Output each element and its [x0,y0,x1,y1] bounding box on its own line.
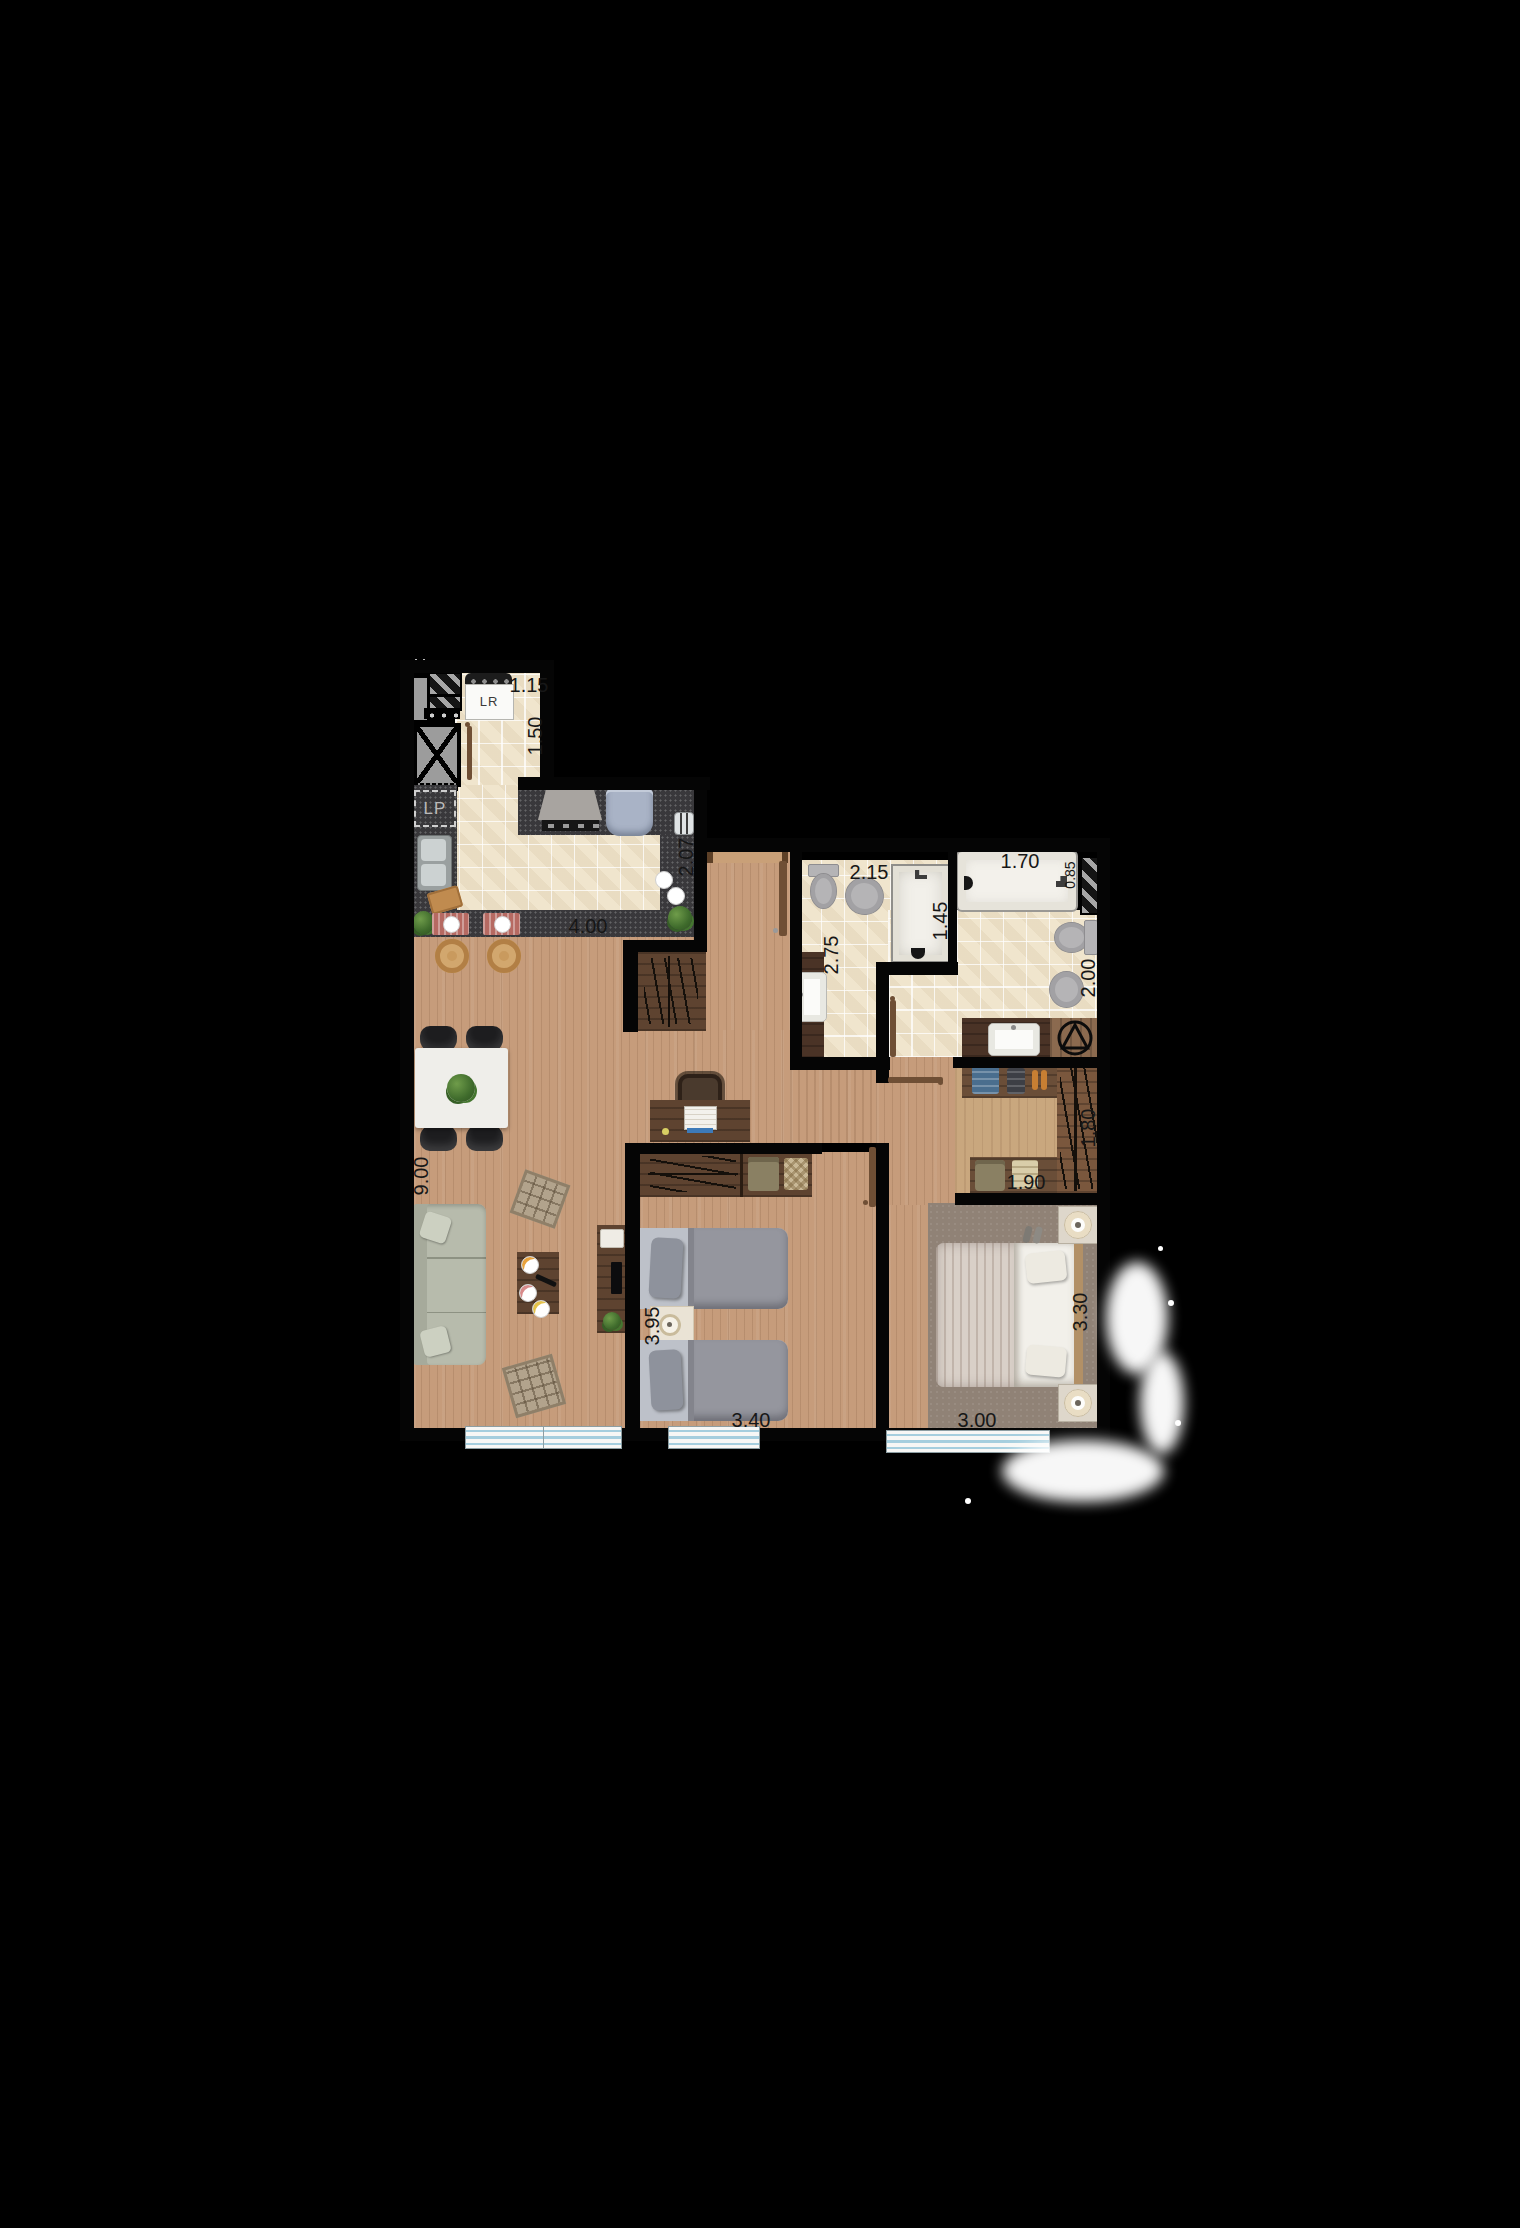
double-bed-pillow-1 [1025,1250,1068,1284]
entry-door-handle [773,928,778,933]
bath1-door-hinge [890,996,895,1001]
heater-circle-triangle-icon [1055,1019,1095,1057]
wall-bedrooms-divider [876,1143,889,1435]
wall-closet-bottom [955,1193,1110,1205]
dim-bathroom1-width: 2.15 [850,862,889,882]
wall-corridor-right [790,852,802,1068]
shaft-x-box-icon [413,723,461,787]
tv-rack-plant-icon [603,1312,621,1330]
dim-closet-shelf-width: 1.90 [1007,1172,1046,1192]
counter-plant-left-icon [413,911,434,934]
stove-hood [538,786,602,820]
washer-label: LR [480,695,499,708]
dim-service-depth: 1.50 [525,717,545,756]
dim-bathtub-length: 1.70 [1001,851,1040,871]
kitchen-sink-basin-1 [421,839,446,861]
wall-bath1-bottom [790,1057,890,1070]
bedroom2-door-leaf [869,1147,876,1207]
bedroom2-door-handle [863,1200,868,1205]
closet-pants-stack [1007,1068,1025,1094]
coffee-plate-2 [519,1284,537,1302]
tv-screen [611,1262,622,1294]
dim-bathtub-width: 0.85 [1063,861,1077,888]
hall-floor-suite [790,1067,876,1143]
coat-closet-hangers-icon [644,958,698,1024]
white-speck-3 [1175,1420,1181,1426]
dim-bedroom2-width: 3.40 [732,1410,771,1430]
meter-dots-icon [424,708,460,719]
living-window-1 [465,1426,545,1449]
single-bed-2-pillow [648,1349,683,1411]
dim-kitchen-counter-depth: 2.07 [676,838,696,877]
counter-plate-1 [655,871,673,889]
single-bed-1-pillow [648,1237,683,1299]
suite-door-leaf [888,1077,943,1083]
coffee-plate-1 [521,1256,539,1274]
dim-bathroom2-depth: 2.00 [1078,959,1098,998]
desk-printer [684,1106,717,1130]
bath1-door-leaf [890,1000,896,1057]
double-bed-pillow-2 [1025,1344,1067,1377]
dining-chair-3 [420,1124,457,1151]
bath1-toilet-bowl [810,873,837,909]
dim-service-width: 1.15 [510,675,549,695]
bedroom2-folded-shirt [748,1157,779,1191]
dishwasher-label: LP [424,800,447,817]
entry-door-leaf [779,861,787,936]
counter-plate-2 [667,887,685,905]
bath2-toilet-tank [1084,920,1098,955]
nightstand-1-lamp [1064,1211,1092,1239]
dining-chair-4 [466,1124,503,1151]
closet-jeans-stack [972,1066,999,1094]
service-door-hinge [465,722,470,727]
stool-1 [435,939,469,973]
bedroom2-wardrobe-hangers-icon [650,1156,736,1192]
desk-mug [662,1128,669,1135]
floor-plan-canvas: LR LP [0,0,1520,2228]
bedroom2-basket [784,1158,808,1190]
wall-kitchen-top [518,777,710,790]
dim-closet-rail-depth: 1.80 [1078,1109,1098,1148]
white-blob-3 [1002,1440,1164,1502]
wall-service-top [400,660,552,673]
entry-threshold [707,852,788,863]
tv-console-item [600,1229,624,1248]
wall-left [400,660,414,1433]
closet-slippers [1032,1070,1038,1090]
wall-bedroom2-top [625,1143,822,1154]
white-blob-2 [1140,1352,1184,1454]
wall-closet-top [953,1057,1110,1068]
dim-bedroom1-width: 3.00 [958,1410,997,1430]
stove-cooktop [542,820,599,831]
counter-plant-icon [668,906,692,930]
dim-living-total-depth: 9.00 [411,1157,431,1196]
wall-bedroom2-left [625,1143,640,1435]
dim-bathroom1-depth: 2.75 [821,936,841,975]
placemat-1-plate [443,916,460,933]
dim-bathroom1-shower-depth: 1.45 [930,902,950,941]
closet-shirt [975,1160,1005,1191]
dim-bedroom2-depth: 3.95 [642,1307,662,1346]
nightstand-2-lamp [1064,1389,1092,1417]
single-bed-1-duvet [688,1228,788,1309]
double-bed-duvet-striped [936,1243,1022,1387]
stool-2 [487,939,521,973]
bedroom2-tray-cup [667,1322,672,1327]
service-door-leaf [467,726,472,780]
bath2-faucet [1011,1025,1016,1030]
white-speck-1 [1168,1300,1174,1306]
kitchen-sink-basin-2 [421,864,446,886]
bedroom2-wardrobe-divider [740,1152,743,1197]
suite-door-handle [938,1080,943,1085]
white-speck-4 [965,1498,971,1504]
dim-bedroom1-depth: 3.30 [1070,1293,1090,1332]
wall-vent-grille-icon [674,812,694,835]
washer-top-panel [465,673,512,684]
wall-entry-bath-top [694,838,1110,852]
desk-paper-tray [687,1128,713,1133]
coffee-plate-3 [532,1300,550,1318]
wall-coat-closet-left [623,940,638,1032]
placemat-2-plate [494,916,511,933]
dim-kitchen-width: 4.00 [569,916,608,936]
living-window-2 [543,1426,622,1449]
refrigerator [606,789,653,836]
dining-table-plant-icon [447,1074,475,1102]
duct-hatch-icon [428,672,462,696]
white-speck-2 [1158,1246,1163,1251]
